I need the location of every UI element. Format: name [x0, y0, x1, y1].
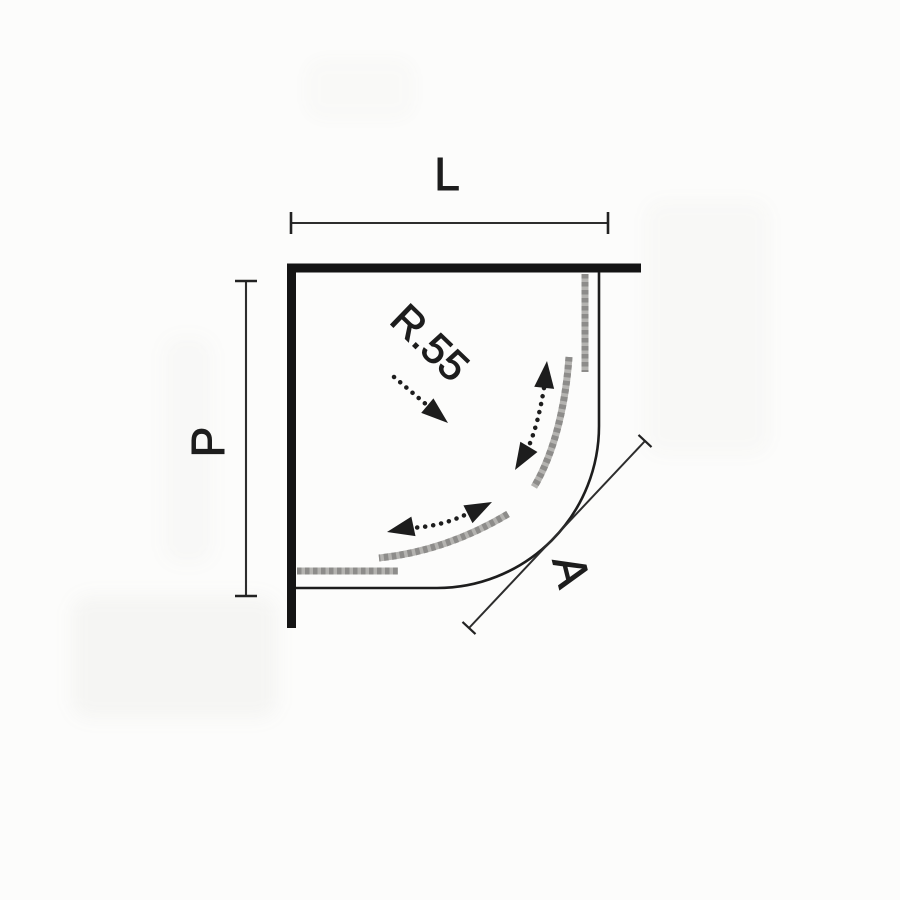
arrow-left-head-icon [385, 517, 416, 542]
depth-dimension: P [182, 281, 257, 596]
shower-enclosure-diagram: L P [0, 0, 900, 900]
door-motion-arrow-left-shaft [409, 512, 471, 528]
radius-label: R.55 [382, 295, 478, 390]
diagram-canvas: L P [0, 0, 900, 900]
arrow-up-head-icon [534, 360, 557, 389]
width-label: L [434, 148, 460, 200]
sliding-door-right-texture [534, 357, 569, 487]
sliding-door-left-texture [379, 514, 508, 558]
width-dimension: L [291, 148, 608, 234]
sliding-door-left-base [379, 514, 508, 558]
glass-panels [297, 274, 585, 571]
arrow-down-head-icon [506, 442, 537, 475]
radius-callout: R.55 [382, 295, 478, 430]
door-motion-arrow-right-shaft [528, 388, 544, 448]
front-dimension: A [463, 435, 652, 634]
arrow-right-head-icon [463, 493, 496, 523]
sliding-door-right [534, 357, 569, 487]
sliding-door-left [379, 514, 508, 558]
door-motion-arrow-left [385, 493, 497, 542]
front-dimension-line [469, 441, 645, 628]
radius-arrow-shaft [394, 377, 428, 406]
front-label: A [543, 550, 601, 593]
depth-label: P [182, 427, 234, 458]
